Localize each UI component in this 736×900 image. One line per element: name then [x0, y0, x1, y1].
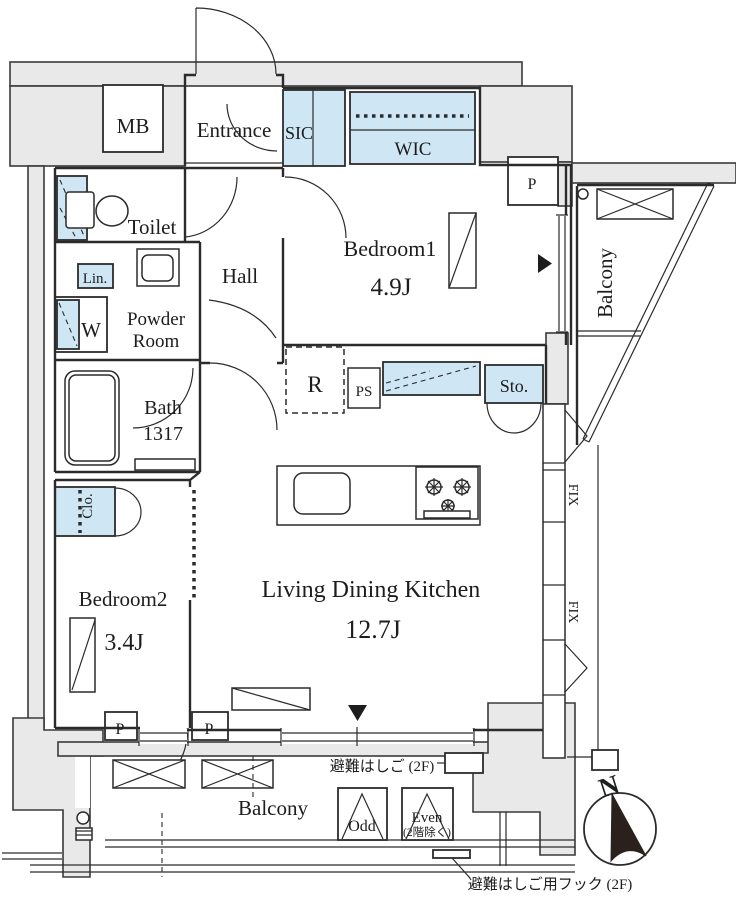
drain-bottom [77, 812, 89, 824]
label-even-2: (2階除く) [403, 825, 451, 839]
label-balcony-bottom: Balcony [238, 796, 308, 820]
label-powder-2: Room [133, 331, 180, 352]
label-linen: Lin. [83, 271, 108, 287]
label-fridge: R [307, 372, 323, 397]
corridor-band-top [10, 62, 522, 86]
compass: N [584, 769, 656, 865]
label-bedroom2-size: 3.4J [104, 630, 143, 656]
structure-right-band [572, 163, 736, 183]
compass-north-label: N [595, 769, 623, 804]
label-washer: W [81, 318, 101, 342]
hook-box [433, 850, 470, 858]
label-p-bottom-left: P [116, 721, 125, 738]
balcony-drain [578, 189, 588, 199]
label-odd: Odd [348, 818, 376, 835]
label-hook: 避難はしご用フック (2F) [468, 876, 633, 893]
hatch-target-box [445, 753, 483, 773]
label-entrance: Entrance [197, 118, 272, 142]
floor-plan: N MB Entrance SIC WIC P Toilet Lin. Hall… [0, 0, 736, 900]
toilet-tank [66, 192, 94, 228]
label-ldk-size: 12.7J [345, 615, 401, 644]
label-sic: SIC [285, 123, 313, 143]
label-fix-2: FIX [565, 601, 580, 624]
hatch-block [76, 828, 92, 840]
label-hatch: 避難はしご (2F) [330, 758, 435, 775]
label-bedroom1-size: 4.9J [371, 274, 412, 301]
floor-plan-svg: N MB Entrance SIC WIC P Toilet Lin. Hall… [0, 0, 736, 900]
label-fix-1: FIX [565, 484, 580, 507]
label-wic: WIC [395, 139, 432, 160]
structure-left-band [28, 166, 44, 728]
kitchen-sink [294, 473, 350, 514]
label-toilet: Toilet [128, 215, 177, 239]
bath-sill [135, 459, 195, 470]
structure-sto-wall [546, 333, 568, 404]
toilet-bowl [96, 196, 128, 226]
label-powder-1: Powder [127, 309, 186, 330]
label-even-1: Even [412, 810, 443, 826]
label-bedroom2: Bedroom2 [79, 587, 168, 611]
label-mb: MB [117, 114, 150, 138]
label-balcony-right: Balcony [593, 248, 617, 318]
label-p-bottom-right: P [205, 721, 214, 738]
structure-top-right [480, 86, 572, 162]
label-p-top: P [528, 176, 537, 193]
label-ldk: Living Dining Kitchen [262, 577, 481, 603]
label-bath-2: 1317 [143, 423, 183, 445]
label-closet: Clo. [80, 493, 96, 518]
label-storage: Sto. [500, 376, 529, 396]
label-bedroom1: Bedroom1 [344, 236, 437, 261]
structure-corner-box [592, 750, 618, 770]
stove-handle [424, 511, 470, 518]
label-hall: Hall [222, 264, 258, 288]
label-ps: PS [356, 384, 373, 400]
label-bath-1: Bath [144, 397, 182, 419]
bedroom2-window-symbol [70, 618, 95, 692]
